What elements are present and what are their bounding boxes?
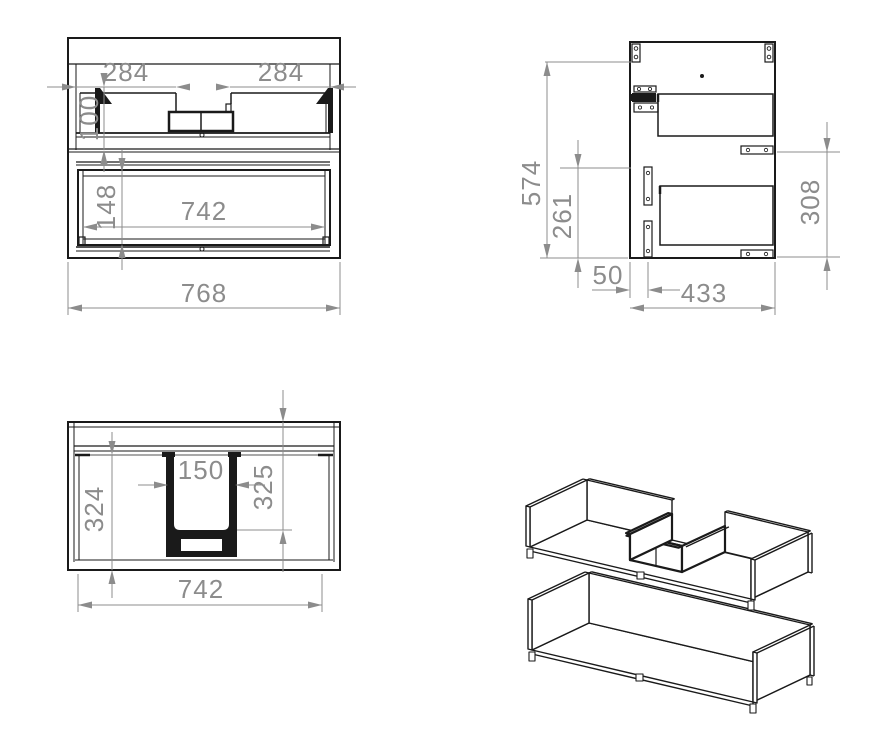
- dim-top-325: 325: [237, 390, 292, 572]
- dim-side-308: 308: [777, 122, 840, 290]
- dim-front-148: 148: [91, 150, 126, 270]
- dim-side-433: 433: [630, 262, 775, 315]
- dim-front-768: 768: [68, 262, 340, 315]
- dim-front-284-pair: 284 284: [47, 57, 356, 91]
- dim-side-433: 433: [681, 278, 727, 308]
- drawer-bracket-right: [316, 88, 333, 133]
- top-view: 150 325 324 742: [68, 390, 340, 612]
- dim-front-742: 742: [181, 196, 227, 226]
- dim-side-50: 50: [593, 260, 624, 290]
- technical-drawing-page: 284 284 100 148 742: [0, 0, 894, 732]
- dim-side-50: 50: [592, 260, 680, 298]
- hanger-fitting: [629, 86, 658, 112]
- front-view: 284 284 100 148 742: [47, 38, 356, 315]
- dim-front-100: 100: [74, 95, 104, 141]
- iso-bottom-drawer: [528, 572, 814, 713]
- dim-side-574: 574: [516, 160, 546, 206]
- isometric-view: [526, 479, 814, 713]
- dim-top-150: 150: [178, 455, 224, 485]
- dim-side-308: 308: [795, 179, 825, 225]
- dim-front-148: 148: [91, 184, 121, 230]
- dim-front-100: 100: [74, 73, 108, 172]
- dim-top-742: 742: [178, 574, 224, 604]
- dim-front-right-284: 284: [258, 57, 304, 87]
- dim-top-742: 742: [78, 574, 322, 612]
- side-view: 574 261 308: [516, 42, 840, 315]
- dim-top-150: 150: [138, 455, 265, 489]
- dim-top-325: 325: [248, 464, 278, 510]
- technical-drawing: 284 284 100 148 742: [0, 0, 894, 732]
- dim-top-324: 324: [79, 486, 109, 532]
- dim-side-261: 261: [547, 193, 577, 239]
- dim-top-324: 324: [79, 432, 116, 598]
- dim-front-left-284: 284: [103, 57, 149, 87]
- dim-front-768: 768: [181, 278, 227, 308]
- drill-point: [700, 74, 704, 78]
